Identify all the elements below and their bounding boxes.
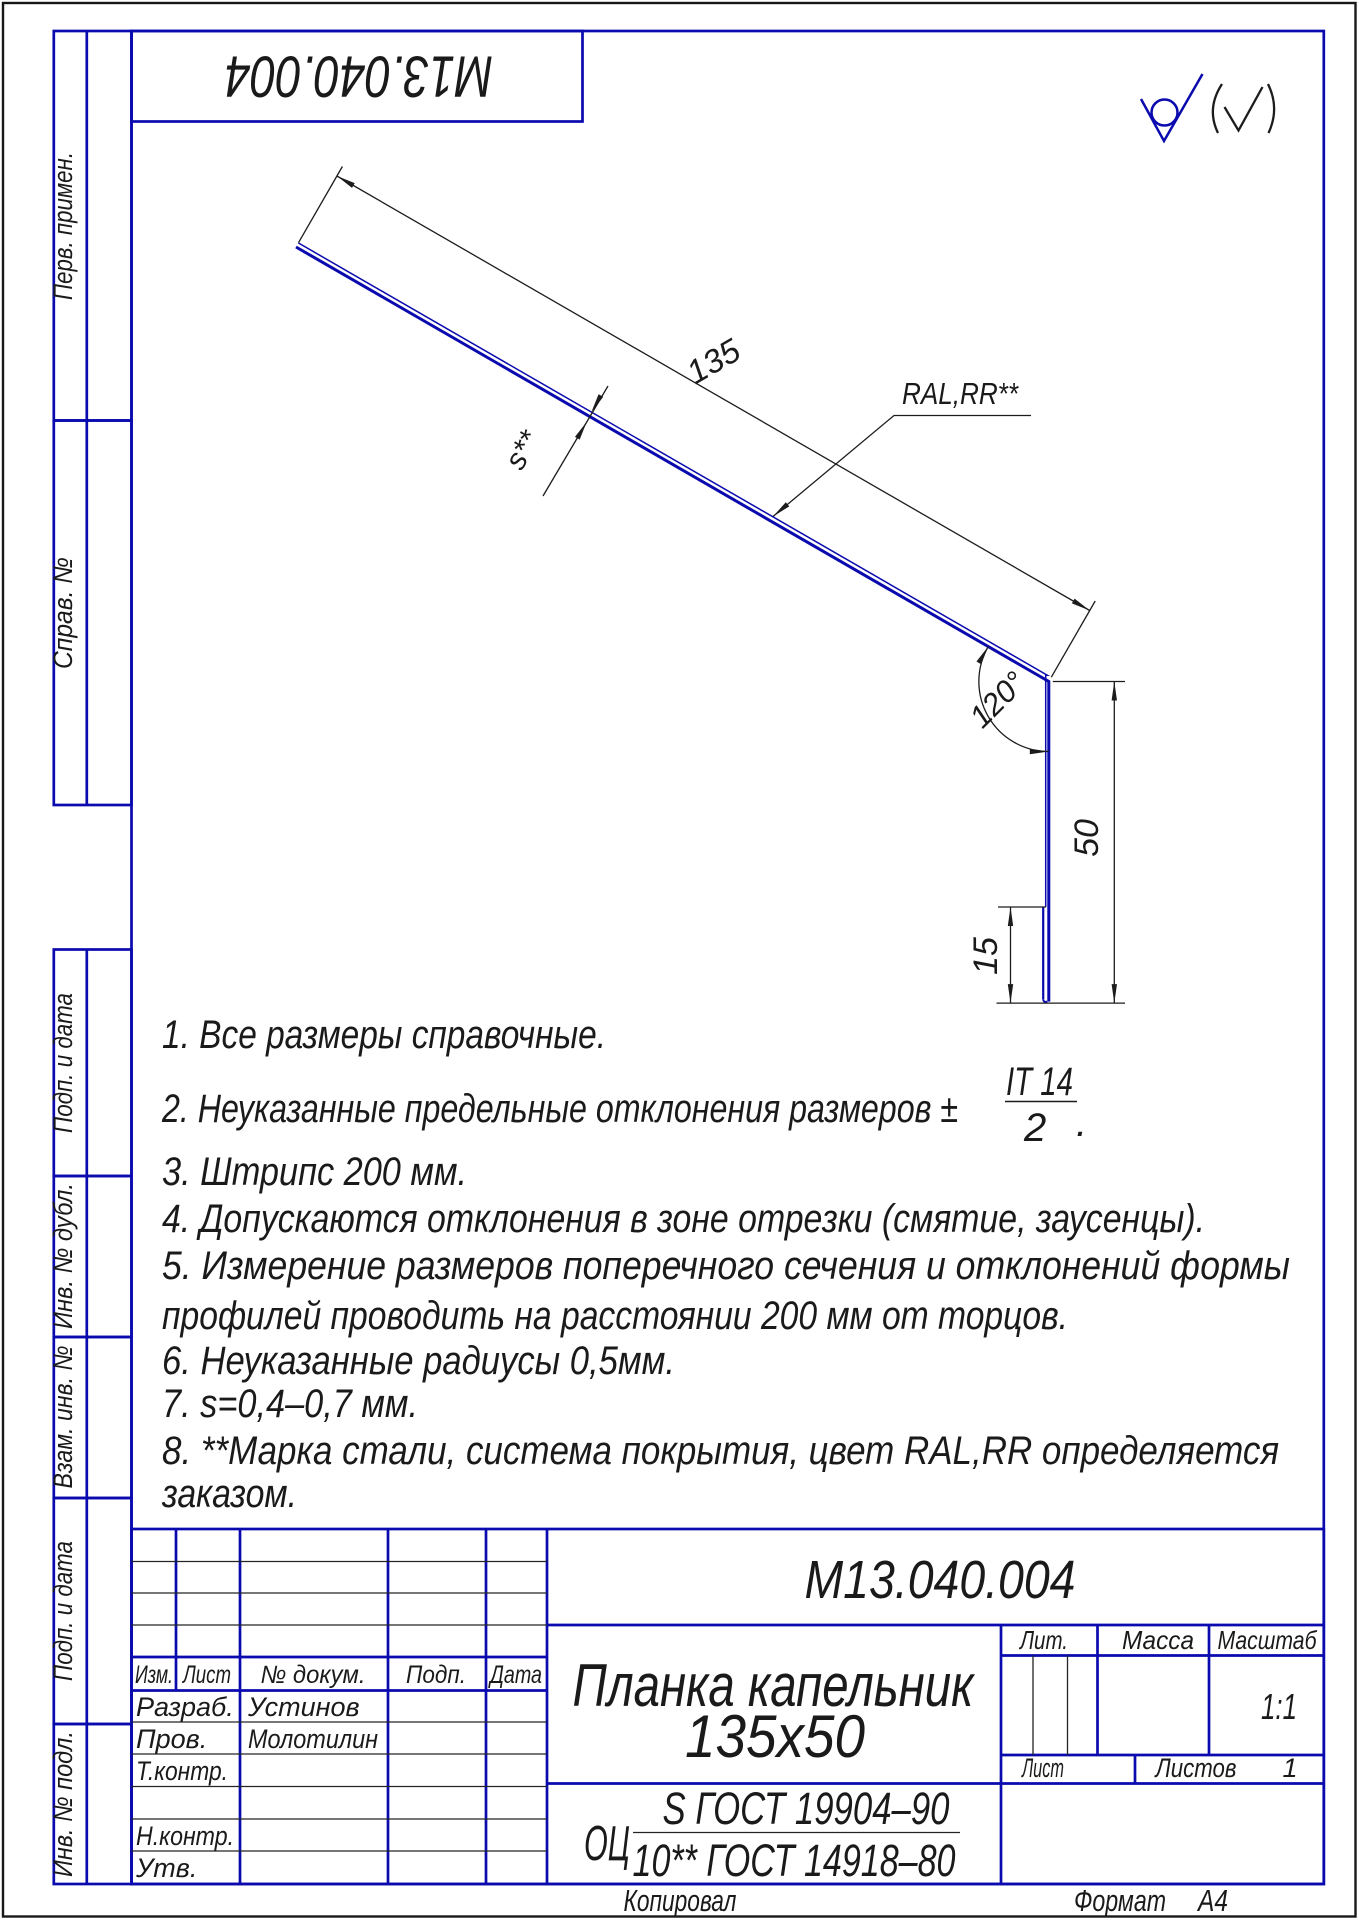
svg-text:1. Все размеры справочные.: 1. Все размеры справочные.	[162, 1013, 606, 1057]
svg-text:Утв.: Утв.	[135, 1853, 197, 1883]
svg-text:135: 135	[680, 331, 747, 391]
svg-text:Инв. № подл.: Инв. № подл.	[48, 1731, 78, 1877]
svg-text:Лист: Лист	[1021, 1753, 1064, 1783]
svg-text:Подп.: Подп.	[406, 1661, 466, 1689]
svg-text:2: 2	[1023, 1106, 1046, 1150]
svg-text:Взам. инв. №: Взам. инв. №	[48, 1346, 78, 1489]
svg-text:6. Неуказанные радиусы 0,5м: 6. Неуказанные радиусы 0,5мм.	[162, 1339, 675, 1383]
svg-text:4. Допускаются отклонения в: 4. Допускаются отклонения в зоне отрезки…	[162, 1197, 1205, 1241]
svg-text:Лит.: Лит.	[1018, 1625, 1068, 1655]
svg-text:8. **Марка стали, система по: 8. **Марка стали, система покрытия, цвет…	[162, 1429, 1279, 1473]
svg-text:15: 15	[967, 937, 1005, 975]
svg-text:Справ. №: Справ. №	[48, 557, 78, 669]
svg-text:s**: s**	[499, 424, 547, 475]
svg-text:№ докум.: № докум.	[261, 1661, 366, 1689]
svg-text:Масса: Масса	[1122, 1625, 1194, 1655]
svg-text:Т.контр.: Т.контр.	[136, 1756, 228, 1786]
svg-text:М13.040.004: М13.040.004	[805, 1550, 1076, 1610]
svg-text:5. Измерение размеров попере: 5. Измерение размеров поперечного сечени…	[162, 1244, 1290, 1288]
svg-text:заказом.: заказом.	[161, 1472, 297, 1516]
svg-text:1: 1	[1282, 1753, 1297, 1783]
svg-text:Изм.: Изм.	[135, 1661, 173, 1689]
svg-text:Лист: Лист	[182, 1661, 231, 1689]
svg-text:Н.контр.: Н.контр.	[136, 1821, 234, 1851]
svg-text:Листов: Листов	[1154, 1753, 1237, 1783]
svg-text:Инв. № дубл.: Инв. № дубл.	[48, 1183, 78, 1329]
svg-text:50: 50	[1068, 819, 1106, 857]
svg-text:Устинов: Устинов	[247, 1692, 360, 1722]
svg-text:120°: 120°	[963, 665, 1033, 735]
svg-text:.: .	[1076, 1101, 1087, 1145]
svg-text:3. Штрипс 200 мм.: 3. Штрипс 200 мм.	[162, 1150, 467, 1194]
svg-text:S ГОСТ 19904–90: S ГОСТ 19904–90	[663, 1783, 950, 1834]
svg-text:IT 14: IT 14	[1006, 1060, 1073, 1104]
svg-text:Копировал: Копировал	[624, 1883, 737, 1918]
svg-text:2. Неуказанные предельные от: 2. Неуказанные предельные отклонения раз…	[161, 1087, 958, 1131]
svg-text:Перв. примен.: Перв. примен.	[48, 152, 78, 300]
svg-text:М13.040.004: М13.040.004	[225, 44, 493, 109]
svg-text:Подп. и дата: Подп. и дата	[48, 993, 78, 1133]
svg-text:10** ГОСТ 14918–80: 10** ГОСТ 14918–80	[633, 1835, 956, 1886]
svg-text:профилей проводить на расстоян: профилей проводить на расстоянии 200 мм …	[162, 1294, 1068, 1338]
svg-text:А4: А4	[1196, 1883, 1228, 1918]
svg-text:RAL,RR**: RAL,RR**	[902, 376, 1019, 411]
svg-text:135х50: 135х50	[685, 1703, 865, 1770]
svg-text:7. s=0,4–0,7 мм.: 7. s=0,4–0,7 мм.	[162, 1382, 418, 1426]
svg-text:Масштаб: Масштаб	[1218, 1625, 1318, 1655]
svg-text:ОЦ: ОЦ	[584, 1817, 630, 1871]
svg-text:Дата: Дата	[488, 1661, 542, 1689]
svg-text:Формат: Формат	[1074, 1883, 1166, 1918]
svg-text:Молотилин: Молотилин	[248, 1724, 378, 1754]
svg-text:Разраб.: Разраб.	[136, 1692, 234, 1722]
svg-text:Подп. и дата: Подп. и дата	[48, 1541, 78, 1681]
svg-text:1:1: 1:1	[1261, 1686, 1297, 1727]
svg-text:Пров.: Пров.	[136, 1724, 207, 1754]
